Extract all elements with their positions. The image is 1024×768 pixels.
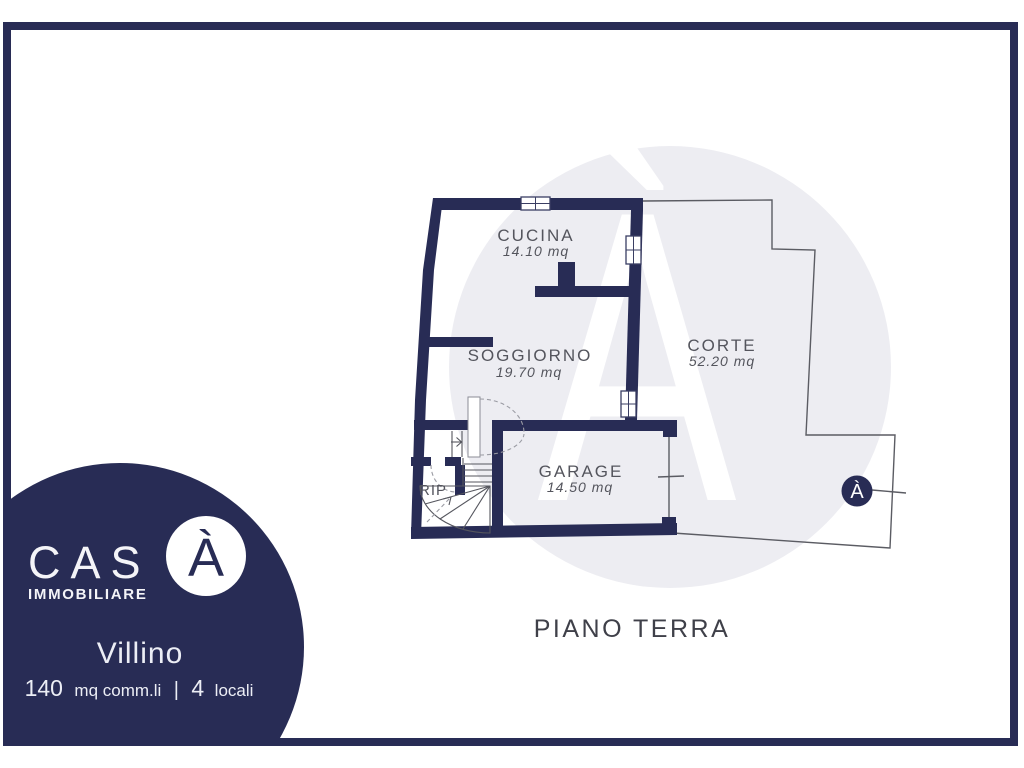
window-top [521, 197, 550, 210]
wall-garage-left [492, 431, 503, 527]
window-right-upper [626, 236, 641, 264]
area-corte: 52.20 mq [689, 353, 755, 369]
wall-divider-cucina [535, 286, 633, 297]
label-soggiorno: SOGGIORNO [468, 346, 593, 365]
floorplan-page: À [0, 0, 1024, 768]
wall-hall-left [414, 420, 468, 430]
brand-main-text: CAS [28, 537, 151, 588]
listing-rooms-value: 4 [191, 675, 204, 701]
wall-garage-top [492, 420, 677, 431]
brand-sub-text: IMMOBILIARE [28, 586, 148, 603]
floorplan-canvas: À [0, 0, 1024, 768]
window-right-lower [621, 391, 636, 417]
label-rip: RIP [419, 482, 447, 499]
door-leaf [468, 397, 480, 457]
listing-area-unit: mq comm.li [74, 681, 161, 700]
area-garage: 14.50 mq [547, 479, 613, 495]
wall-garage-right-stub-top [663, 431, 677, 437]
wall-rip-a [411, 457, 431, 466]
wall-rip-b [445, 457, 461, 466]
listing-type: Villino [97, 637, 184, 670]
area-cucina: 14.10 mq [503, 243, 569, 259]
listing-rooms-unit: locali [215, 681, 254, 700]
wall-stub-cucina [558, 262, 575, 288]
listing-area-value: 140 [25, 675, 63, 701]
marker-letter: À [850, 480, 864, 503]
area-soggiorno: 19.70 mq [496, 364, 562, 380]
listing-separator: | [174, 679, 179, 701]
brand-accent-letter: À [188, 528, 224, 588]
floor-caption: PIANO TERRA [534, 615, 731, 643]
